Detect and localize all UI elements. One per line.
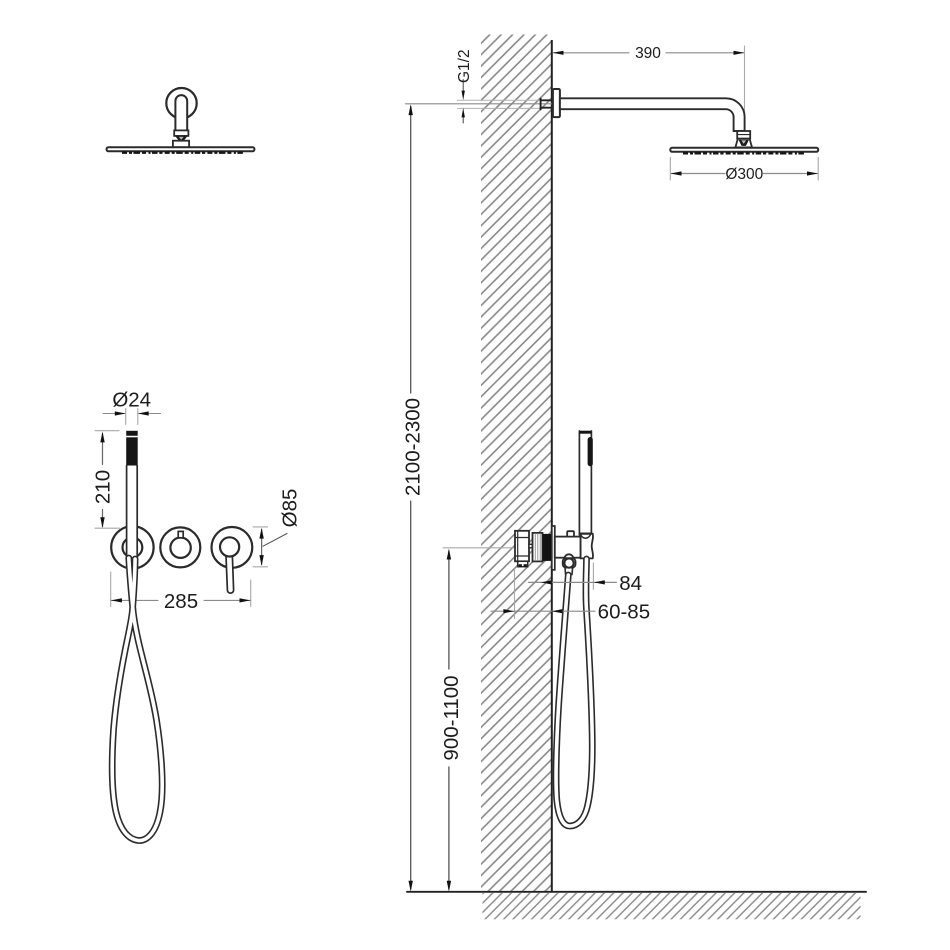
svg-text:G1/2: G1/2 bbox=[456, 49, 473, 83]
svg-text:Ø85: Ø85 bbox=[279, 489, 302, 528]
svg-text:2100-2300: 2100-2300 bbox=[401, 398, 424, 496]
svg-text:84: 84 bbox=[619, 572, 642, 595]
svg-text:210: 210 bbox=[92, 470, 115, 504]
svg-text:60-85: 60-85 bbox=[598, 601, 650, 624]
svg-text:Ø24: Ø24 bbox=[112, 389, 151, 412]
svg-text:390: 390 bbox=[635, 45, 661, 62]
svg-text:900-1100: 900-1100 bbox=[440, 675, 463, 760]
svg-text:285: 285 bbox=[164, 590, 198, 613]
svg-text:Ø300: Ø300 bbox=[725, 166, 763, 183]
